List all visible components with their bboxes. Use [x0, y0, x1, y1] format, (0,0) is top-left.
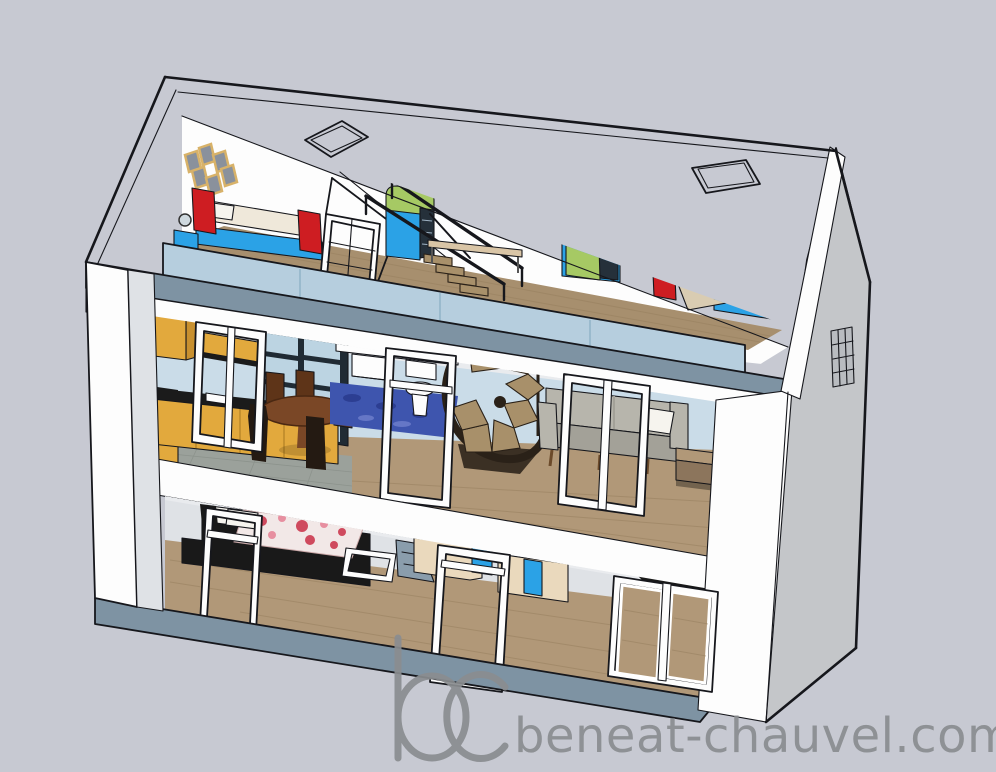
dining-chair-near [306, 416, 326, 470]
sliding-door-pane [617, 585, 662, 679]
house-cutaway-render: beneat-chauvel.com [0, 0, 996, 772]
sliding-door-pane [667, 592, 710, 683]
bed-headboard [192, 188, 216, 234]
closet-door-blue [524, 559, 542, 596]
sofa-armrest [670, 402, 688, 450]
toilet-tank [406, 360, 436, 380]
watermark-site-text: beneat-chauvel.com [514, 708, 996, 764]
sofa-armrest [538, 402, 558, 450]
wardrobe-body [386, 210, 420, 260]
toilet-base [412, 394, 428, 416]
house-render-page: beneat-chauvel.com [0, 0, 996, 772]
bed-footboard [298, 210, 322, 254]
sliding-door [608, 576, 718, 692]
gable-grid-window [831, 327, 854, 387]
left-gable-wall [86, 262, 163, 611]
